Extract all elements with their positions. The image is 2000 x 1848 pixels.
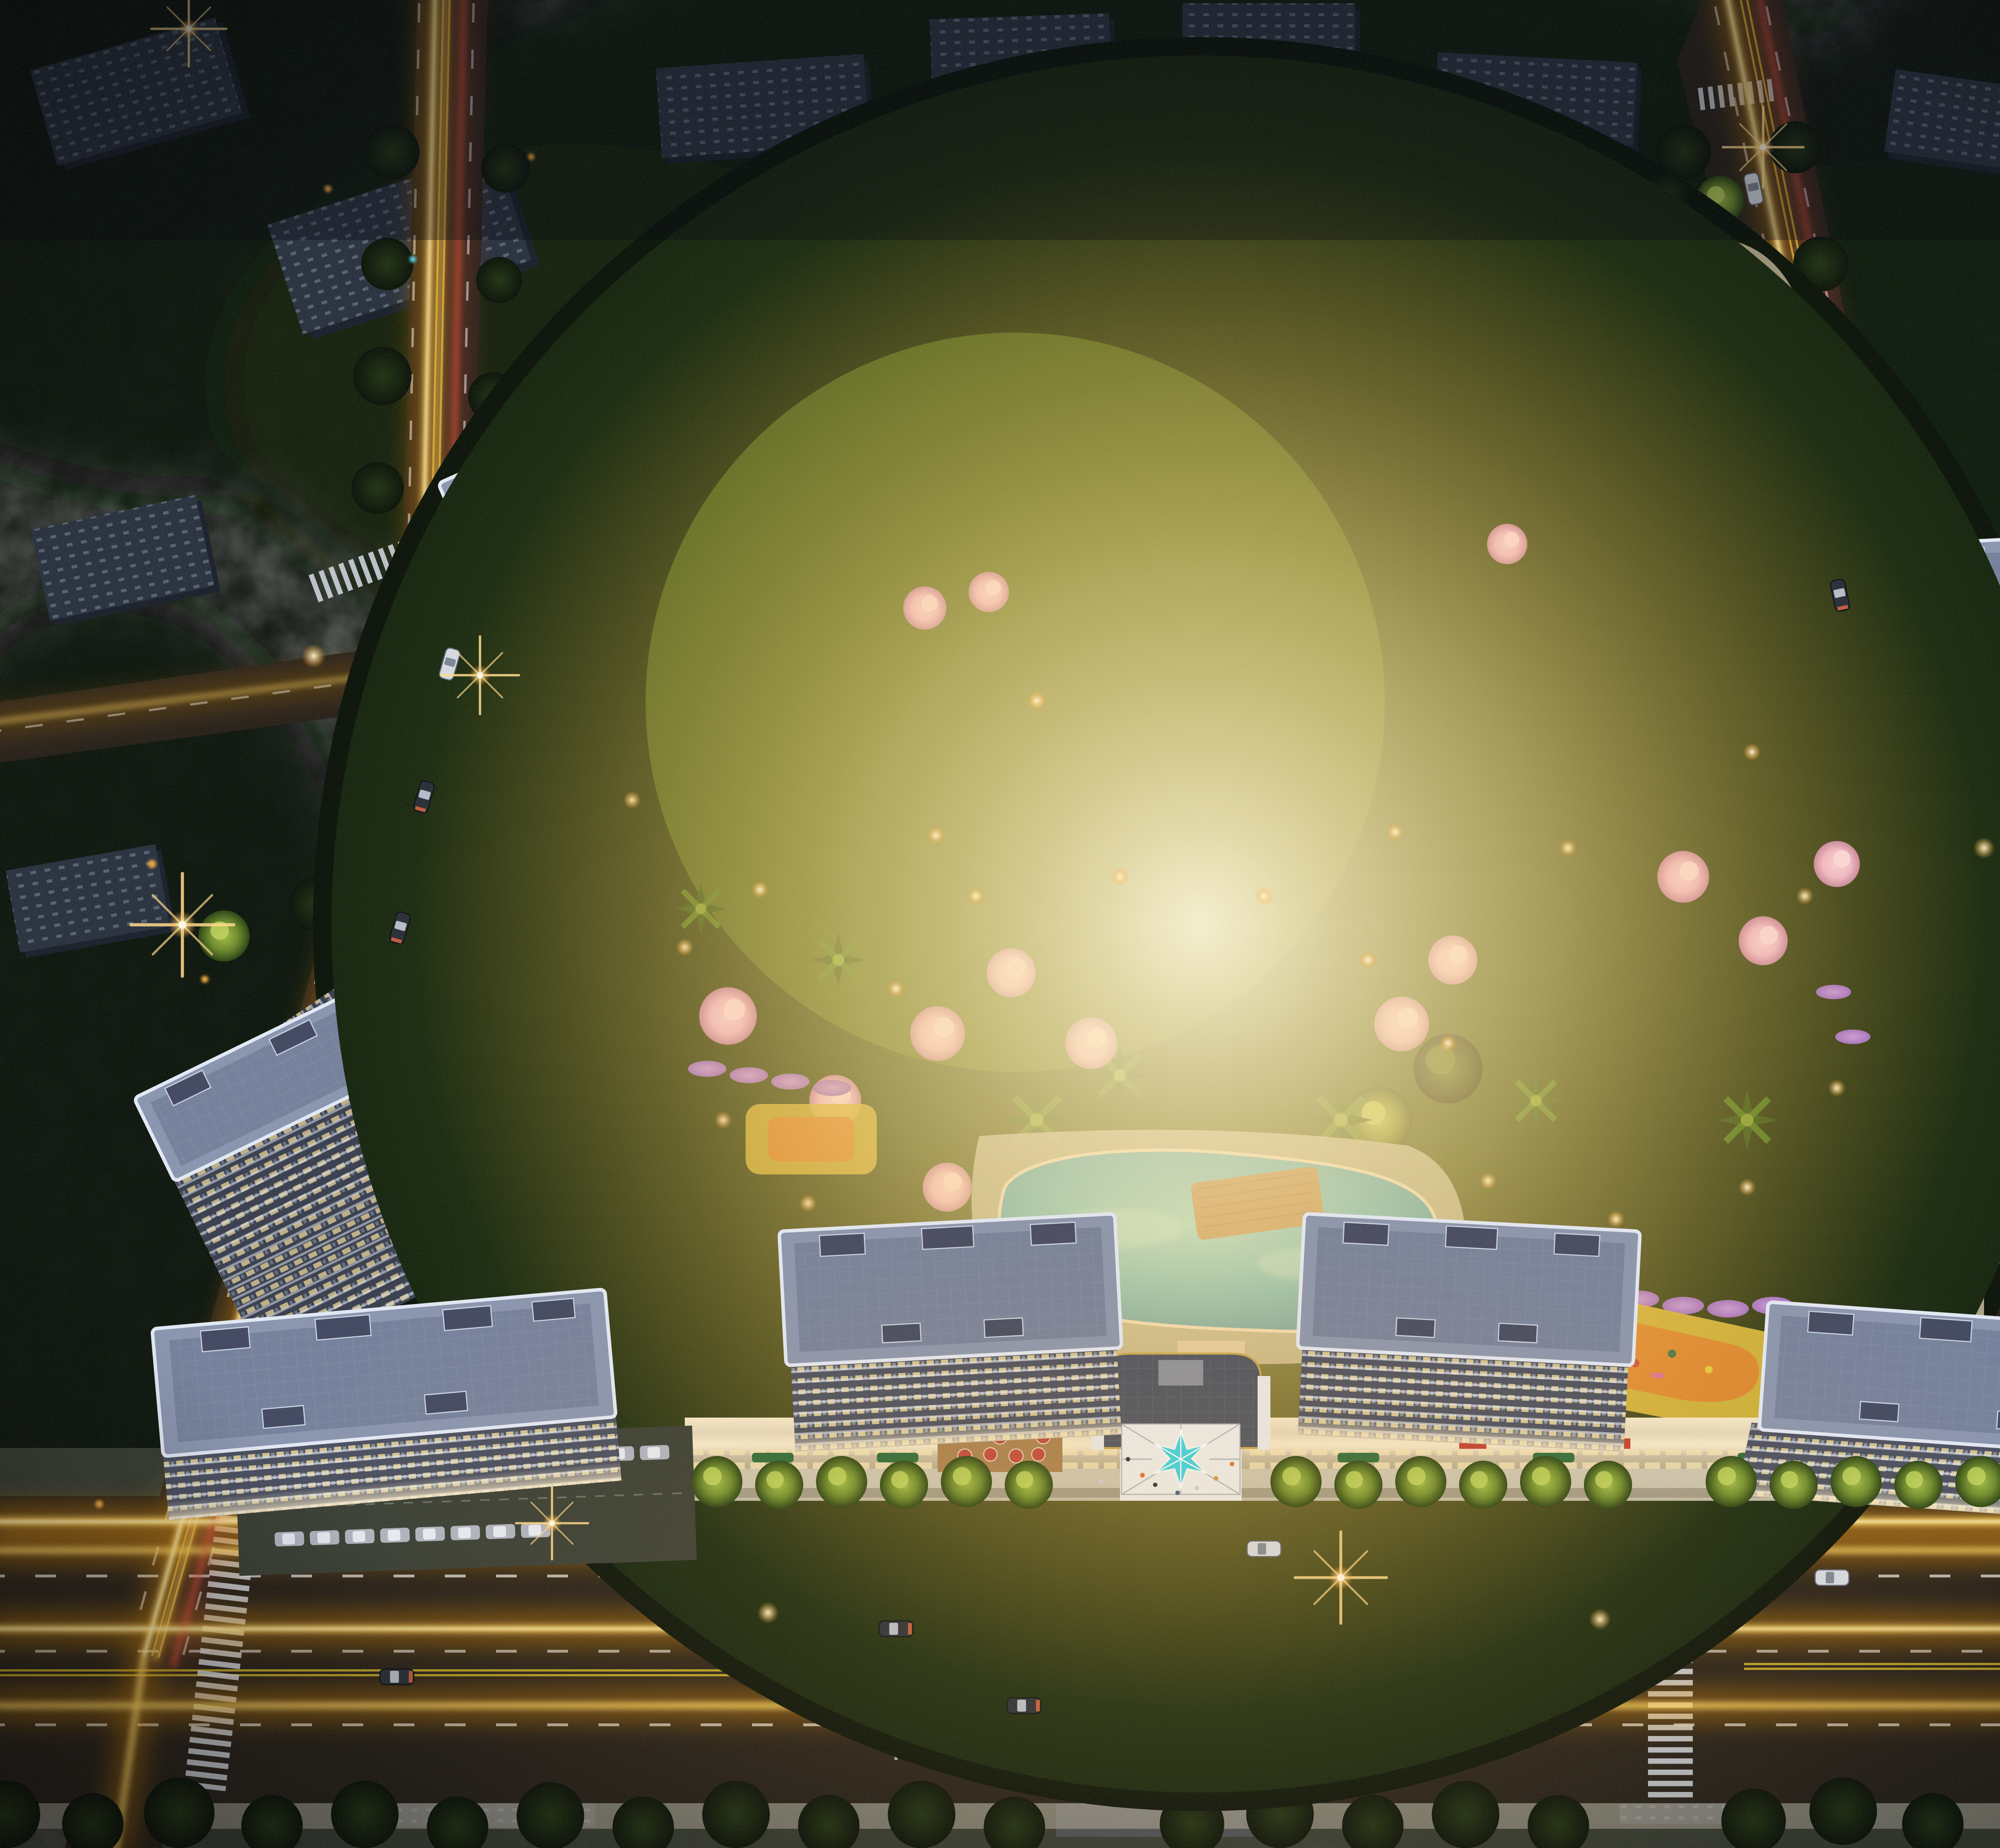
atmosphere-overlays	[0, 0, 2000, 1848]
aerial-night-render	[0, 0, 2000, 1848]
render-canvas	[0, 0, 2000, 1848]
